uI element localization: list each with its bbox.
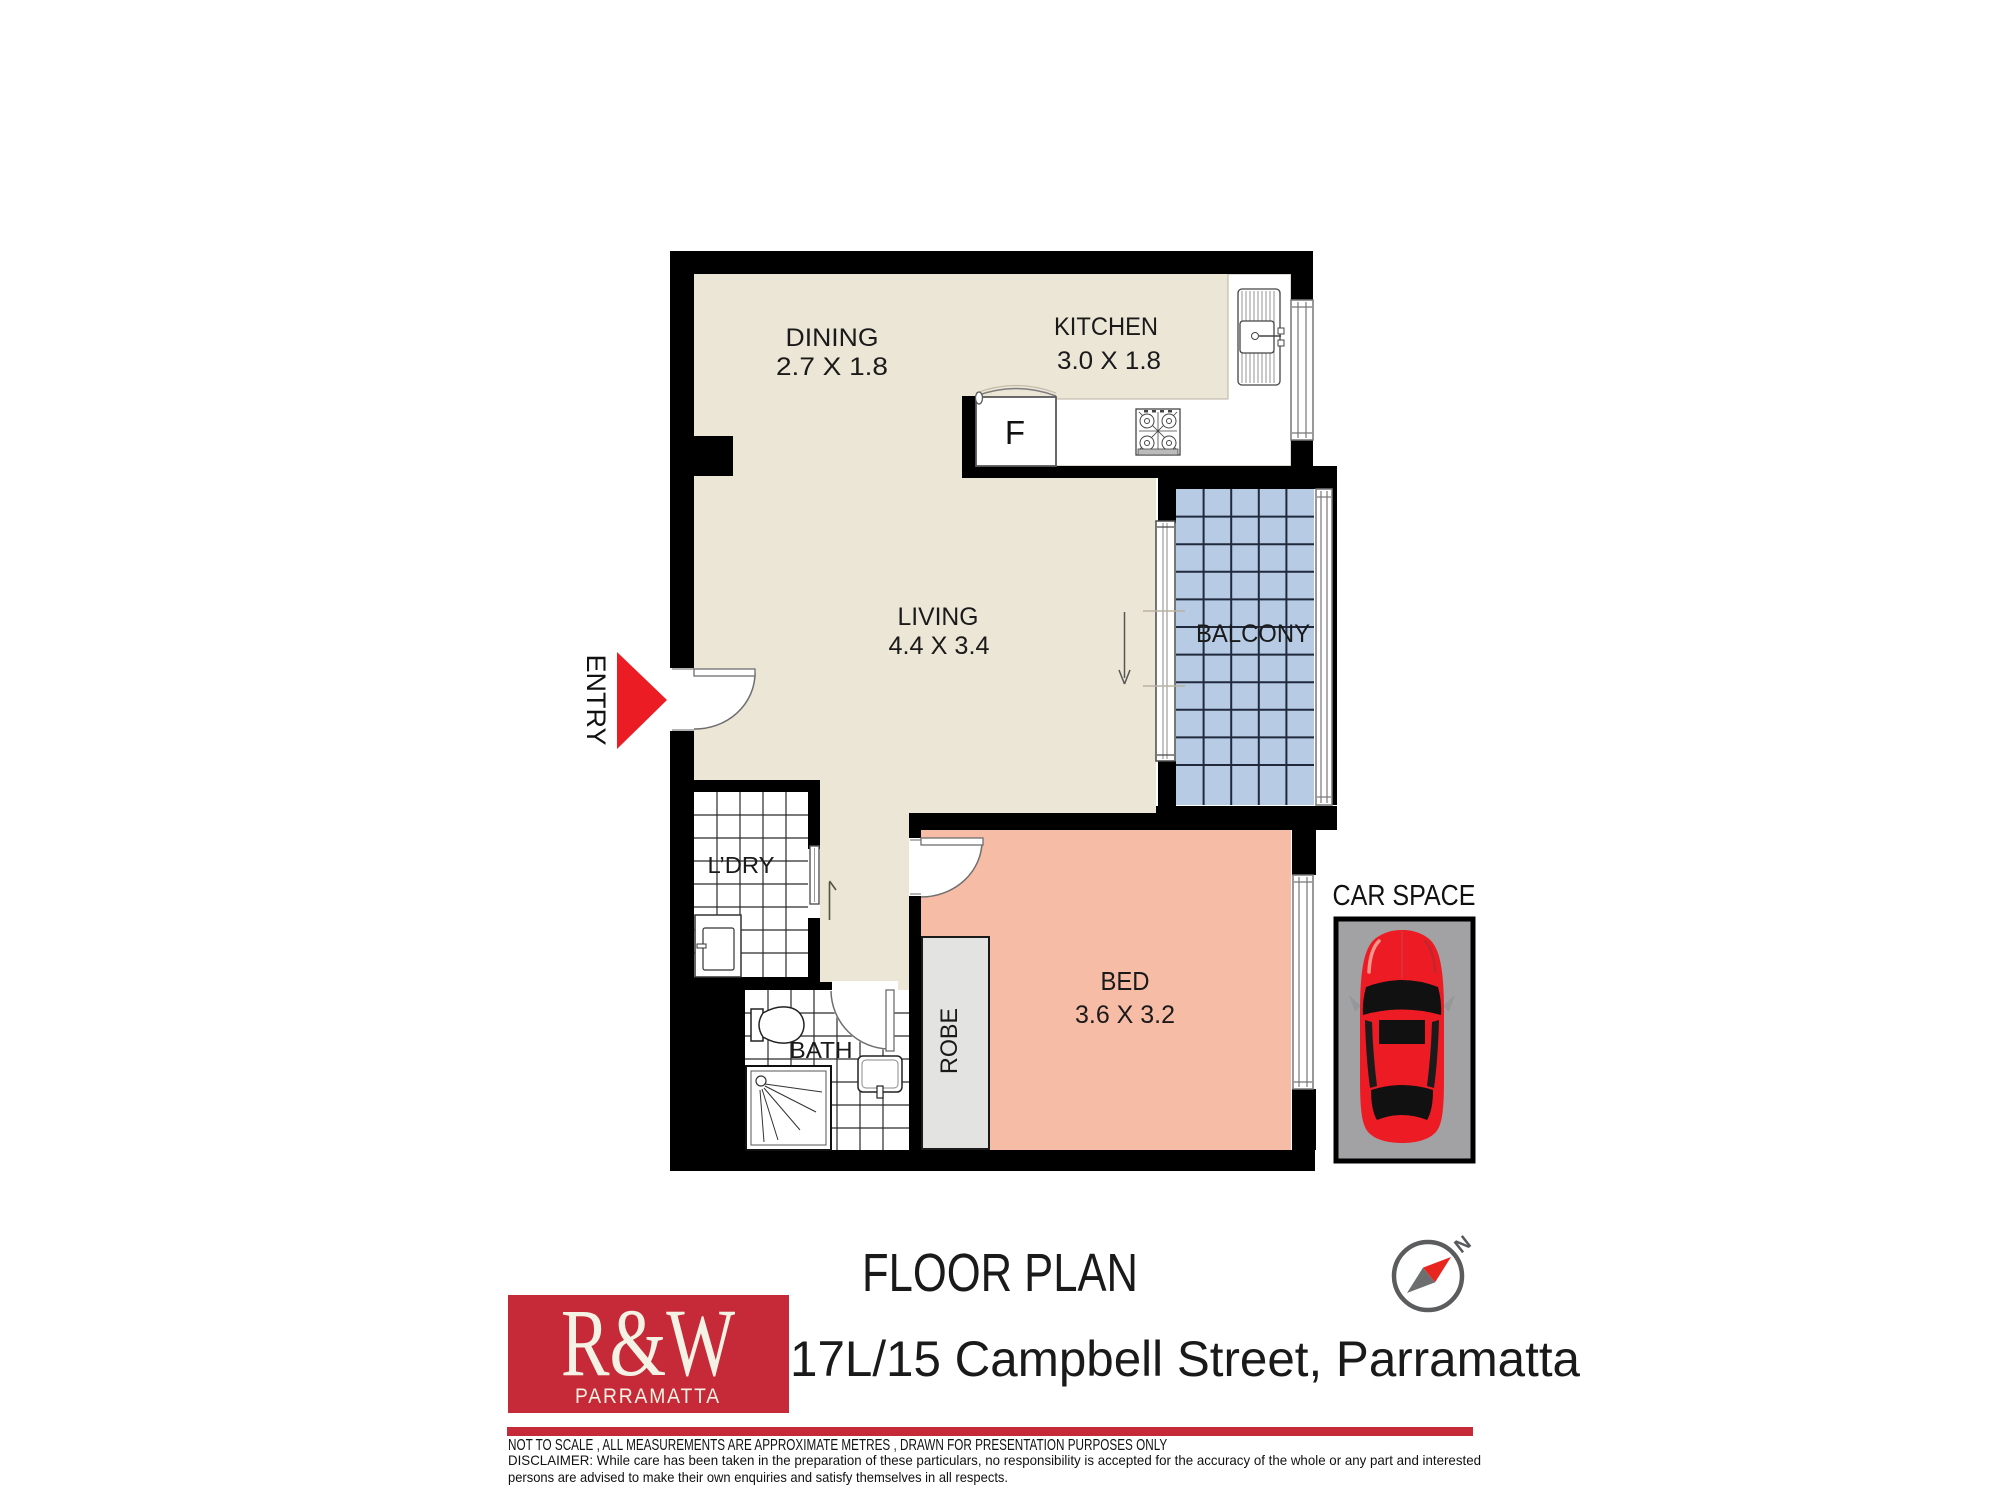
svg-text:PARRAMATTA: PARRAMATTA bbox=[575, 1385, 721, 1408]
svg-text:persons are advised to make th: persons are advised to make their own en… bbox=[508, 1469, 1008, 1485]
svg-text:4.4 X 3.4: 4.4 X 3.4 bbox=[889, 632, 990, 660]
svg-text:R&W: R&W bbox=[561, 1291, 736, 1397]
svg-text:2.7 X 1.8: 2.7 X 1.8 bbox=[776, 353, 888, 381]
svg-text:F: F bbox=[1005, 414, 1025, 451]
svg-text:L’DRY: L’DRY bbox=[708, 852, 775, 878]
svg-text:DINING: DINING bbox=[786, 324, 879, 352]
svg-text:3.6 X 3.2: 3.6 X 3.2 bbox=[1075, 1001, 1175, 1029]
svg-text:ENTRY: ENTRY bbox=[581, 655, 611, 746]
svg-text:CAR SPACE: CAR SPACE bbox=[1333, 880, 1476, 912]
svg-text:BED: BED bbox=[1101, 966, 1150, 996]
svg-text:17L/15 Campbell Street, Parram: 17L/15 Campbell Street, Parramatta bbox=[790, 1331, 1580, 1387]
svg-text:LIVING: LIVING bbox=[898, 603, 979, 631]
svg-text:NOT TO SCALE , ALL MEASUREMENT: NOT TO SCALE , ALL MEASUREMENTS ARE APPR… bbox=[508, 1435, 1168, 1453]
svg-text:KITCHEN: KITCHEN bbox=[1054, 313, 1158, 341]
svg-text:DISCLAIMER: While care has be: DISCLAIMER: While care has been taken in… bbox=[508, 1452, 1481, 1468]
svg-text:3.0 X 1.8: 3.0 X 1.8 bbox=[1057, 347, 1161, 375]
svg-text:FLOOR PLAN: FLOOR PLAN bbox=[862, 1243, 1138, 1303]
svg-text:BATH: BATH bbox=[790, 1037, 853, 1063]
svg-text:BALCONY: BALCONY bbox=[1196, 620, 1310, 648]
svg-text:ROBE: ROBE bbox=[936, 1008, 963, 1074]
